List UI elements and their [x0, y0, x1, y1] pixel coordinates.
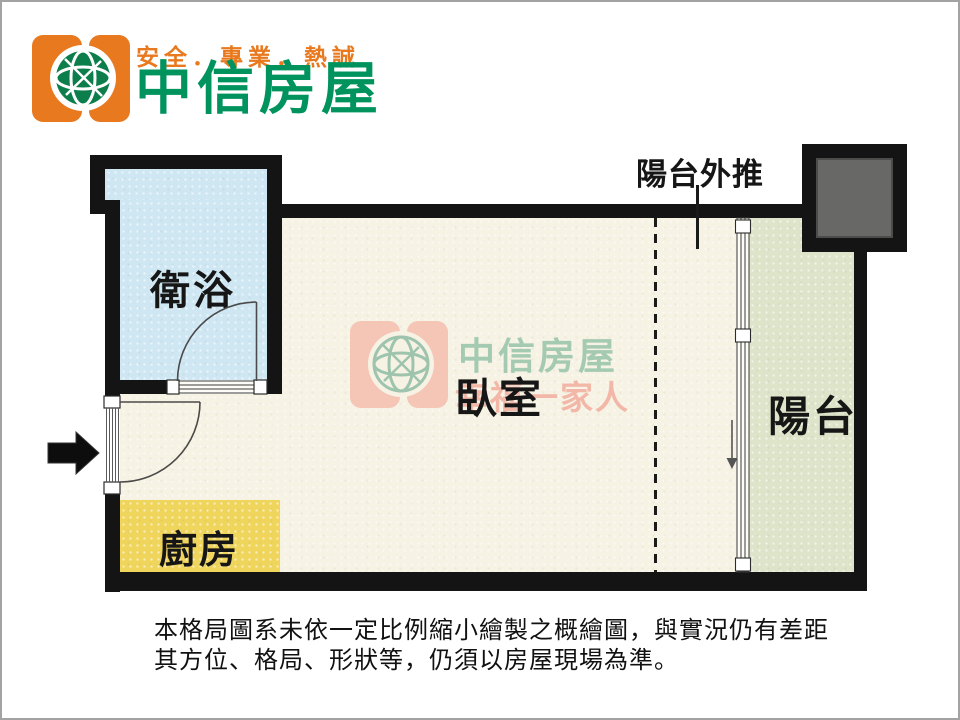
bedroom-label: 臥室	[455, 365, 543, 426]
wall-bathroom-top	[90, 155, 282, 169]
watermark-logo-icon	[350, 318, 450, 411]
balcony-label: 陽台	[768, 383, 858, 444]
wall-bathroom-bottom-left	[105, 380, 169, 394]
wall-bathroom-right	[267, 155, 282, 394]
brand-logo-icon	[32, 32, 132, 125]
balcony-pushout-label: 陽台外推	[636, 149, 764, 194]
wall-left-middle	[105, 200, 120, 400]
disclaimer: 本格局圖系未依一定比例縮小繪製之概繪圖，與實況仍有差距 其方位、格局、形狀等，仍…	[154, 616, 829, 676]
bathroom-label: 衛浴	[150, 258, 236, 316]
wall-bathroom-bottom-right	[260, 380, 282, 394]
entrance-arrow-icon	[48, 432, 99, 474]
brand-name: 中信房屋	[135, 60, 383, 120]
globe-icon	[56, 51, 110, 105]
disclaimer-line-1: 本格局圖系未依一定比例縮小繪製之概繪圖，與實況仍有差距	[154, 616, 829, 646]
floorplan-page: 安全．專業．熱誠 中信房屋 中信房屋 幸福一家人 衛浴 廚房 臥室 陽台 陽台外…	[0, 0, 960, 720]
kitchen-label: 廚房	[159, 519, 239, 574]
duct-shaft	[816, 158, 893, 238]
wall-bottom	[105, 572, 867, 591]
wall-top-main	[267, 204, 802, 218]
disclaimer-line-2: 其方位、格局、形狀等，仍須以房屋現場為準。	[154, 646, 829, 676]
